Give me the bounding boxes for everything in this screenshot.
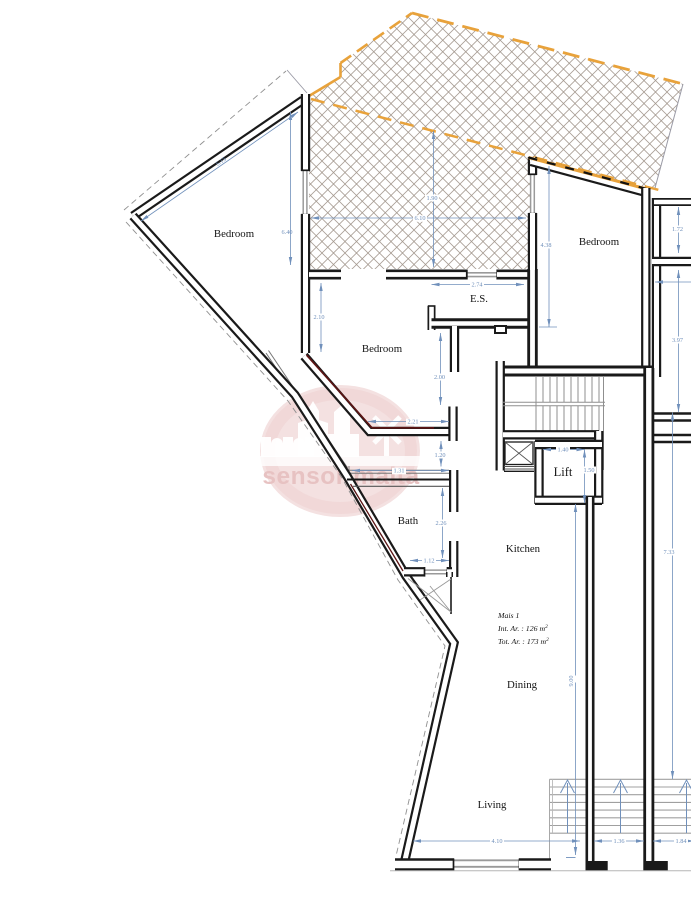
svg-text:Bedroom: Bedroom [362, 343, 403, 355]
svg-text:Bedroom: Bedroom [214, 228, 255, 240]
svg-text:Lift: Lift [554, 465, 573, 479]
svg-text:E.S.: E.S. [470, 293, 488, 305]
svg-text:Living: Living [478, 799, 507, 811]
svg-text:Bath: Bath [398, 515, 419, 527]
svg-text:4.38: 4.38 [540, 242, 551, 249]
svg-text:4.10: 4.10 [491, 838, 502, 845]
svg-text:2.00: 2.00 [434, 374, 445, 381]
svg-text:1.40: 1.40 [557, 447, 568, 454]
svg-text:1.90: 1.90 [426, 195, 437, 202]
svg-text:Int. Ar. : 126 m2: Int. Ar. : 126 m2 [497, 624, 548, 633]
svg-text:6.10: 6.10 [414, 215, 425, 222]
svg-text:1.31: 1.31 [393, 468, 404, 475]
svg-text:6.40: 6.40 [281, 229, 292, 236]
svg-text:2.21: 2.21 [407, 419, 418, 426]
svg-text:1.36: 1.36 [613, 838, 624, 845]
svg-text:2.74: 2.74 [471, 282, 483, 289]
svg-text:7.33: 7.33 [663, 549, 674, 556]
svg-text:1.12: 1.12 [423, 558, 434, 565]
svg-text:Bedroom: Bedroom [579, 236, 620, 248]
svg-text:1.50: 1.50 [583, 467, 594, 474]
svg-text:Tot. Ar. : 173 m2: Tot. Ar. : 173 m2 [498, 637, 549, 646]
svg-text:Dining: Dining [507, 679, 538, 691]
svg-text:1.20: 1.20 [434, 452, 445, 459]
svg-text:1.72: 1.72 [672, 226, 683, 233]
svg-text:2.10: 2.10 [313, 314, 324, 321]
svg-text:9.00: 9.00 [568, 675, 575, 686]
svg-text:Mais 1: Mais 1 [497, 611, 520, 620]
svg-text:3.97: 3.97 [672, 337, 683, 344]
svg-text:1.84: 1.84 [675, 838, 687, 845]
svg-text:Kitchen: Kitchen [506, 543, 541, 555]
svg-text:2.26: 2.26 [435, 520, 446, 527]
